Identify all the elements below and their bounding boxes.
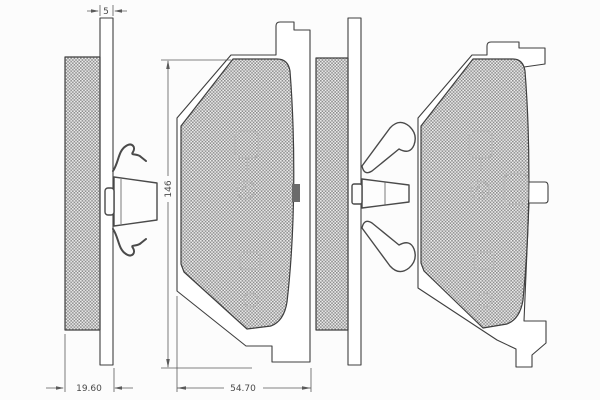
friction-material-edge-right: [316, 58, 348, 330]
brake-pad-technical-drawing: 5 19.60 146 54.70: [0, 0, 600, 400]
dim-label-pad-width: 54.70: [230, 384, 256, 394]
shim-bracket-right: [352, 184, 362, 204]
edge-view-left: [65, 18, 157, 365]
dim-label-plate-thickness: 5: [103, 7, 109, 17]
shim-bracket-left: [105, 188, 114, 215]
spring-clip-arm-top-icon: [113, 145, 146, 171]
chevron-clip-top-icon: [362, 122, 415, 172]
piston-shim-left: [114, 177, 157, 226]
dim-total-thickness: 19.60: [46, 334, 133, 394]
front-view-right: [418, 42, 548, 367]
dim-label-total-thickness: 19.60: [76, 384, 102, 394]
dim-label-pad-length: 146: [164, 180, 174, 197]
edge-view-right: [316, 18, 415, 365]
spring-clip-arm-bottom-icon: [113, 229, 146, 255]
chevron-clip-bottom-icon: [362, 221, 415, 271]
friction-material-edge-left: [65, 57, 100, 330]
dim-plate-thickness: 5: [87, 5, 127, 17]
abutment-lug-left: [292, 184, 300, 202]
front-view-left: [177, 22, 310, 362]
piston-shim-right: [362, 179, 409, 208]
